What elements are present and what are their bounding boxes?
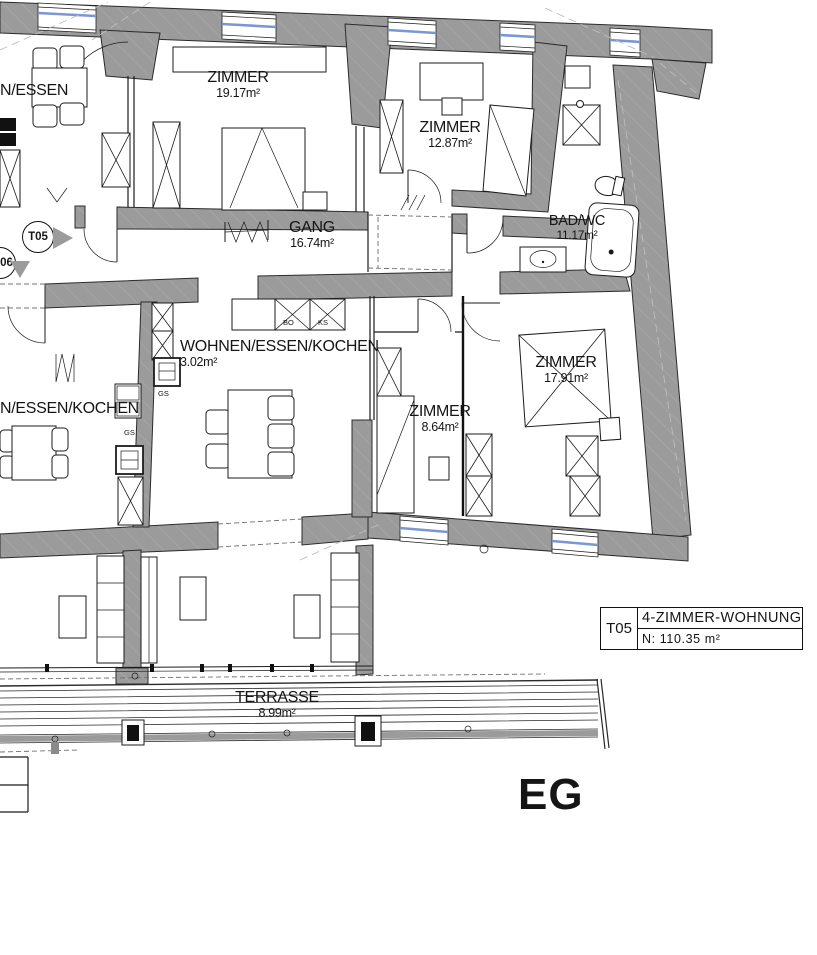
wardrobe-icon xyxy=(570,476,600,516)
room-area: 19.17m² xyxy=(207,87,268,100)
dishwasher-label: GS xyxy=(124,428,135,437)
cabinet-icon xyxy=(152,331,173,360)
room-label-wohnen-left: N/ESSEN/KOCHEN xyxy=(0,401,139,418)
room-label-essen-top: N/ESSEN xyxy=(0,83,68,100)
chair-icon xyxy=(60,103,84,125)
toilet-icon xyxy=(593,174,624,198)
room-label-wohnen-mid: WOHNEN/ESSEN/KOCHEN 3.02m² xyxy=(180,339,379,369)
door-swing-icon xyxy=(467,218,503,253)
entry-arrow-right-icon xyxy=(53,227,73,249)
room-name: BAD/WC xyxy=(549,214,605,229)
entry-arrow-down-icon xyxy=(10,261,30,278)
room-label-zimmer2: ZIMMER 12.87m² xyxy=(419,120,480,150)
window-icon xyxy=(552,529,598,557)
door-swing-icon xyxy=(8,306,45,343)
room-name: TERRASSE xyxy=(235,690,319,707)
chair-icon xyxy=(268,424,294,448)
kitchen-appliance-icon xyxy=(0,133,16,146)
chair-icon xyxy=(52,455,68,478)
bed-icon xyxy=(483,105,534,196)
wardrobe-icon xyxy=(377,348,401,396)
chair-icon xyxy=(33,105,57,127)
bed-icon xyxy=(222,128,305,210)
title-block-type: 4-ZIMMER-WOHNUNG xyxy=(638,608,802,629)
wardrobe-icon xyxy=(466,476,492,516)
chair-icon xyxy=(206,410,230,434)
kitchen-left xyxy=(0,354,143,525)
room-area: 16.74m² xyxy=(289,237,335,250)
fridge-label: KS xyxy=(318,318,328,327)
unit-marker-t05: T05 xyxy=(22,221,54,253)
window-icon xyxy=(388,18,436,48)
floorplan-sheet: N/ESSEN ZIMMER 19.17m² ZIMMER 12.87m² BA… xyxy=(0,0,817,955)
wardrobe-icon xyxy=(466,434,492,476)
room-name: GANG xyxy=(289,220,335,237)
title-block-right: 4-ZIMMER-WOHNUNG N: 110.35 m² xyxy=(638,608,802,649)
door-swing-icon xyxy=(418,299,451,332)
door-swing-icon xyxy=(462,303,500,341)
chair-icon xyxy=(206,444,230,468)
window-icon xyxy=(500,23,535,52)
room-name: ZIMMER xyxy=(535,355,596,372)
window-icon xyxy=(610,28,640,57)
nightstand-icon xyxy=(442,98,462,115)
sofa-icon xyxy=(331,553,359,662)
window-icon xyxy=(38,3,96,33)
dishwasher-label: GS xyxy=(158,389,169,398)
room-area: 8.99m² xyxy=(235,707,319,720)
shower-icon xyxy=(563,101,600,146)
kitchen-sink-icon xyxy=(116,446,143,474)
room-name: ZIMMER xyxy=(207,70,268,87)
wardrobe-icon xyxy=(102,133,130,187)
room-label-bad: BAD/WC 11.17m² xyxy=(549,214,605,242)
room-name: WOHNEN/ESSEN/KOCHEN xyxy=(180,339,379,356)
chair-icon xyxy=(268,396,294,420)
nightstand-icon xyxy=(429,457,449,480)
room-label-gang: GANG 16.74m² xyxy=(289,220,335,250)
room-name: ZIMMER xyxy=(419,120,480,137)
chair-icon xyxy=(268,452,294,476)
door-swing-icon xyxy=(84,229,117,262)
cabinet-icon xyxy=(0,150,20,207)
unit-marker-label: T05 xyxy=(28,231,48,243)
cabinet-icon xyxy=(118,477,143,525)
room-name: ZIMMER xyxy=(409,404,470,421)
room-area: 17.91m² xyxy=(535,372,596,385)
room-label-zimmer1: ZIMMER 19.17m² xyxy=(207,70,268,100)
room-area: 3.02m² xyxy=(180,356,379,369)
wardrobe-icon xyxy=(153,122,180,208)
living-middle xyxy=(206,390,294,478)
floorplan-drawing xyxy=(0,0,817,955)
door-swing-icon xyxy=(408,170,441,203)
chair-icon xyxy=(60,46,84,68)
room-area: 8.64m² xyxy=(409,421,470,434)
door-open-mark xyxy=(47,188,67,202)
room-name: N/ESSEN xyxy=(0,83,68,100)
sill-hatch xyxy=(401,195,425,210)
room-area: 12.87m² xyxy=(419,137,480,150)
chair-icon xyxy=(33,48,57,70)
table-icon xyxy=(180,577,206,620)
chair-icon xyxy=(52,428,68,451)
room-label-terrasse: TERRASSE 8.99m² xyxy=(235,690,319,720)
room-area: 11.17m² xyxy=(549,229,605,242)
headboard-icon xyxy=(420,63,483,100)
loggias xyxy=(0,553,373,679)
terrace-post xyxy=(355,716,381,746)
title-block-net-area: N: 110.35 m² xyxy=(638,629,802,649)
table-icon xyxy=(294,595,320,638)
kitchen-appliance-icon xyxy=(0,118,16,131)
window-icon xyxy=(222,12,276,42)
table-icon xyxy=(59,596,86,638)
sofa-icon xyxy=(97,556,124,663)
wardrobe-icon xyxy=(566,436,598,476)
floor-label: EG xyxy=(518,770,584,820)
sink-icon xyxy=(520,247,566,272)
title-block-unit: T05 xyxy=(601,608,638,649)
cabinet-icon xyxy=(152,303,173,331)
table-icon xyxy=(12,426,56,480)
post-foot xyxy=(51,742,59,754)
duct-box xyxy=(565,66,590,88)
window-icon xyxy=(400,516,448,545)
glazing-panel xyxy=(141,557,157,663)
wardrobe-icon xyxy=(380,100,403,173)
post-icon xyxy=(465,726,471,732)
oven-label: BO xyxy=(283,318,294,327)
room-name: N/ESSEN/KOCHEN xyxy=(0,401,139,418)
room-label-zimmer3: ZIMMER 8.64m² xyxy=(409,404,470,434)
nightstand-icon xyxy=(303,192,327,210)
radiator-icon xyxy=(56,354,74,382)
room-label-zimmer4: ZIMMER 17.91m² xyxy=(535,355,596,385)
nightstand-icon xyxy=(599,417,620,440)
planter-box xyxy=(0,757,28,812)
terrace-post xyxy=(122,720,144,745)
title-block: T05 4-ZIMMER-WOHNUNG N: 110.35 m² xyxy=(600,607,803,650)
kitchen-sink-icon xyxy=(154,358,180,386)
